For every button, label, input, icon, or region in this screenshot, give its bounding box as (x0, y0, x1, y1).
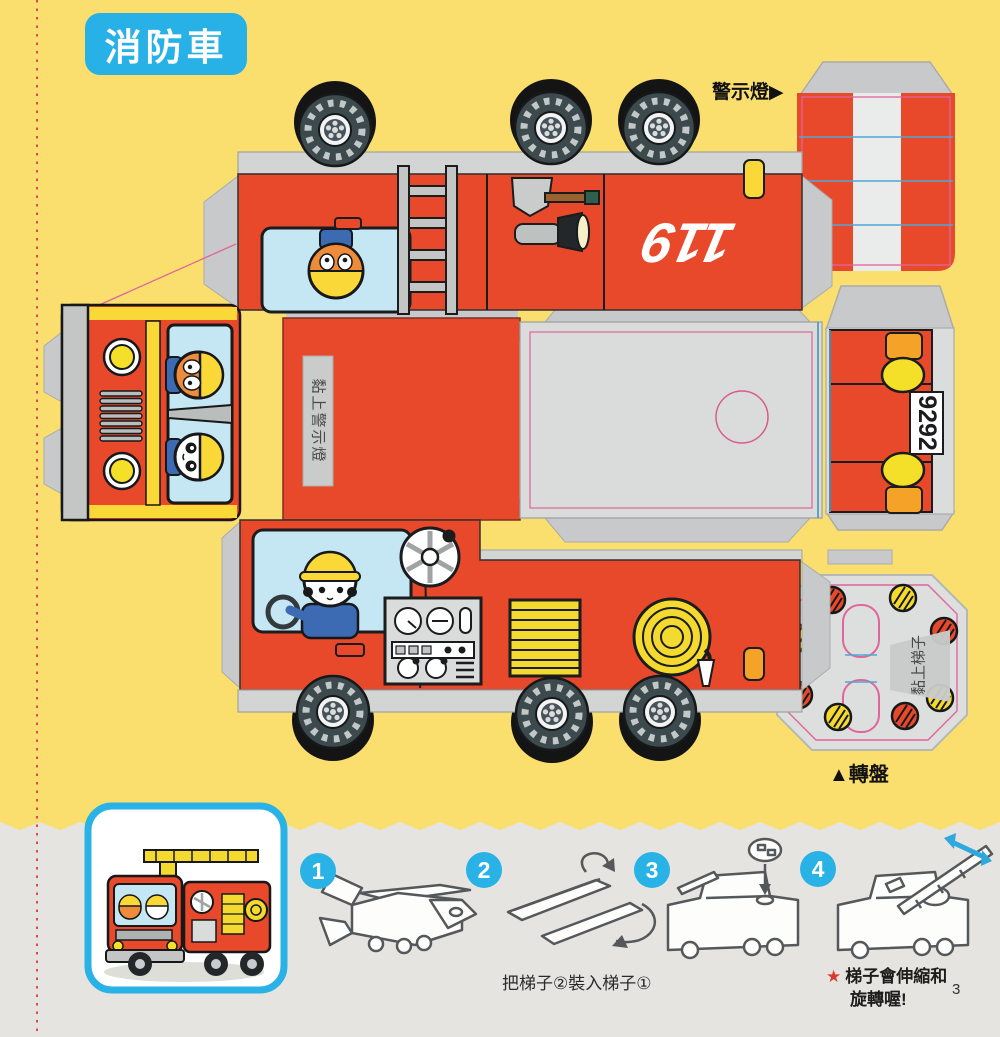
finished-model-photo (88, 806, 284, 990)
deck-panel (498, 322, 822, 518)
note-line2: 旋轉喔! (850, 990, 907, 1009)
door-handle (336, 644, 364, 656)
step-number-2: 2 (466, 852, 502, 888)
headlight (104, 339, 140, 375)
rear-marker-light (886, 333, 922, 359)
step-number-1: 1 (300, 853, 336, 889)
equipment-shutter (510, 600, 580, 676)
page-title-text: 消防車 (105, 17, 228, 71)
wheel-emblem (401, 528, 459, 586)
wheel (297, 676, 369, 748)
firefighter-character (166, 434, 223, 480)
note-line1: 梯子會伸縮和 (845, 967, 947, 986)
rear-light (882, 453, 924, 487)
glue-tab (802, 176, 832, 308)
warning-light-label: 警示燈▶ (712, 77, 784, 104)
star-icon: ★ (826, 967, 841, 986)
headlight (104, 453, 140, 489)
paste-warning-light-label: 黏上警示燈 (310, 378, 327, 463)
wheel (516, 678, 588, 750)
rear-light (882, 358, 924, 392)
page-title: 消防車 (85, 13, 247, 75)
glue-tab (222, 522, 240, 688)
license-plate-number: 9292 (913, 395, 941, 451)
side-light (744, 160, 764, 198)
truck-number-119: 119 (636, 212, 739, 274)
door-handle (335, 218, 361, 229)
wheel (624, 676, 696, 748)
glue-tab (44, 428, 62, 494)
back-panel-piece: 9292 (826, 286, 954, 530)
control-panel (385, 598, 481, 684)
paste-ladder-label: 黏上梯子 (911, 635, 928, 695)
front-panel (62, 305, 240, 520)
step-number-3: 3 (634, 852, 670, 888)
turntable-label: ▲轉盤 (829, 758, 889, 787)
ladder-note: ★梯子會伸縮和 旋轉喔! (826, 966, 947, 1012)
wheel (623, 92, 695, 164)
step3-sketch (668, 839, 798, 958)
side-light (744, 648, 764, 680)
wheel (299, 94, 371, 166)
glue-tab (802, 562, 830, 690)
step2-caption: 把梯子②裝入梯子① (502, 969, 651, 994)
step1-sketch (320, 874, 476, 953)
step4-sketch (838, 833, 992, 958)
wheel (515, 92, 587, 164)
grille (100, 391, 142, 441)
roof-panel: 黏上警示燈 (283, 318, 520, 520)
step-number-4: 4 (800, 851, 836, 887)
craft-book-page: 9292 黏上梯子 (0, 0, 1000, 1037)
bumper (62, 305, 88, 520)
step2-sketch (508, 853, 655, 948)
firefighter-character (166, 352, 223, 398)
glue-tab (545, 518, 810, 542)
page-number: 3 (952, 981, 960, 998)
papercraft-artwork: 9292 黏上梯子 (0, 0, 1000, 1037)
left-side-panel: 119 (238, 160, 802, 314)
rear-marker-light (886, 487, 922, 513)
